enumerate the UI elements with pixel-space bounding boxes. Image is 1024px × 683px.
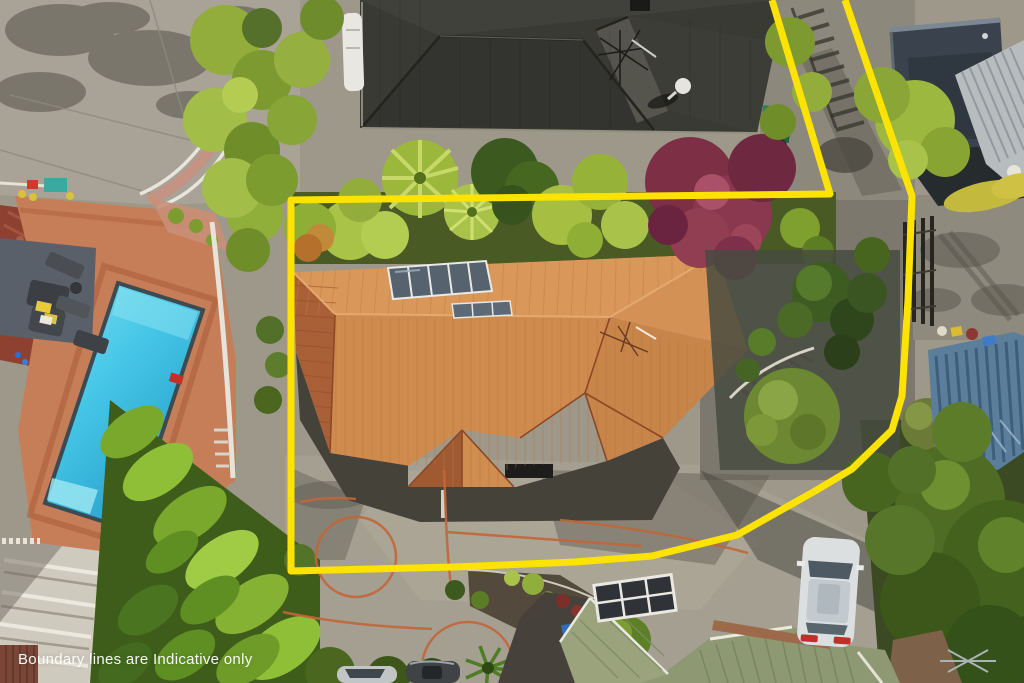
parked-car-silver (337, 666, 397, 683)
maroon-bin (966, 328, 978, 340)
teal-planter (44, 178, 67, 192)
aerial-photo: Boundary lines are Indicative only (0, 0, 1024, 683)
aerial-photo-canvas (0, 0, 1024, 683)
chimney (630, 0, 650, 11)
yellow-bin (950, 326, 962, 337)
white-campervan (342, 13, 365, 92)
skylight-small (452, 301, 512, 318)
boundary-disclaimer: Boundary lines are Indicative only (18, 651, 253, 668)
garage-opening (505, 464, 553, 478)
red-box (27, 180, 38, 189)
parked-car-dark (406, 661, 460, 683)
